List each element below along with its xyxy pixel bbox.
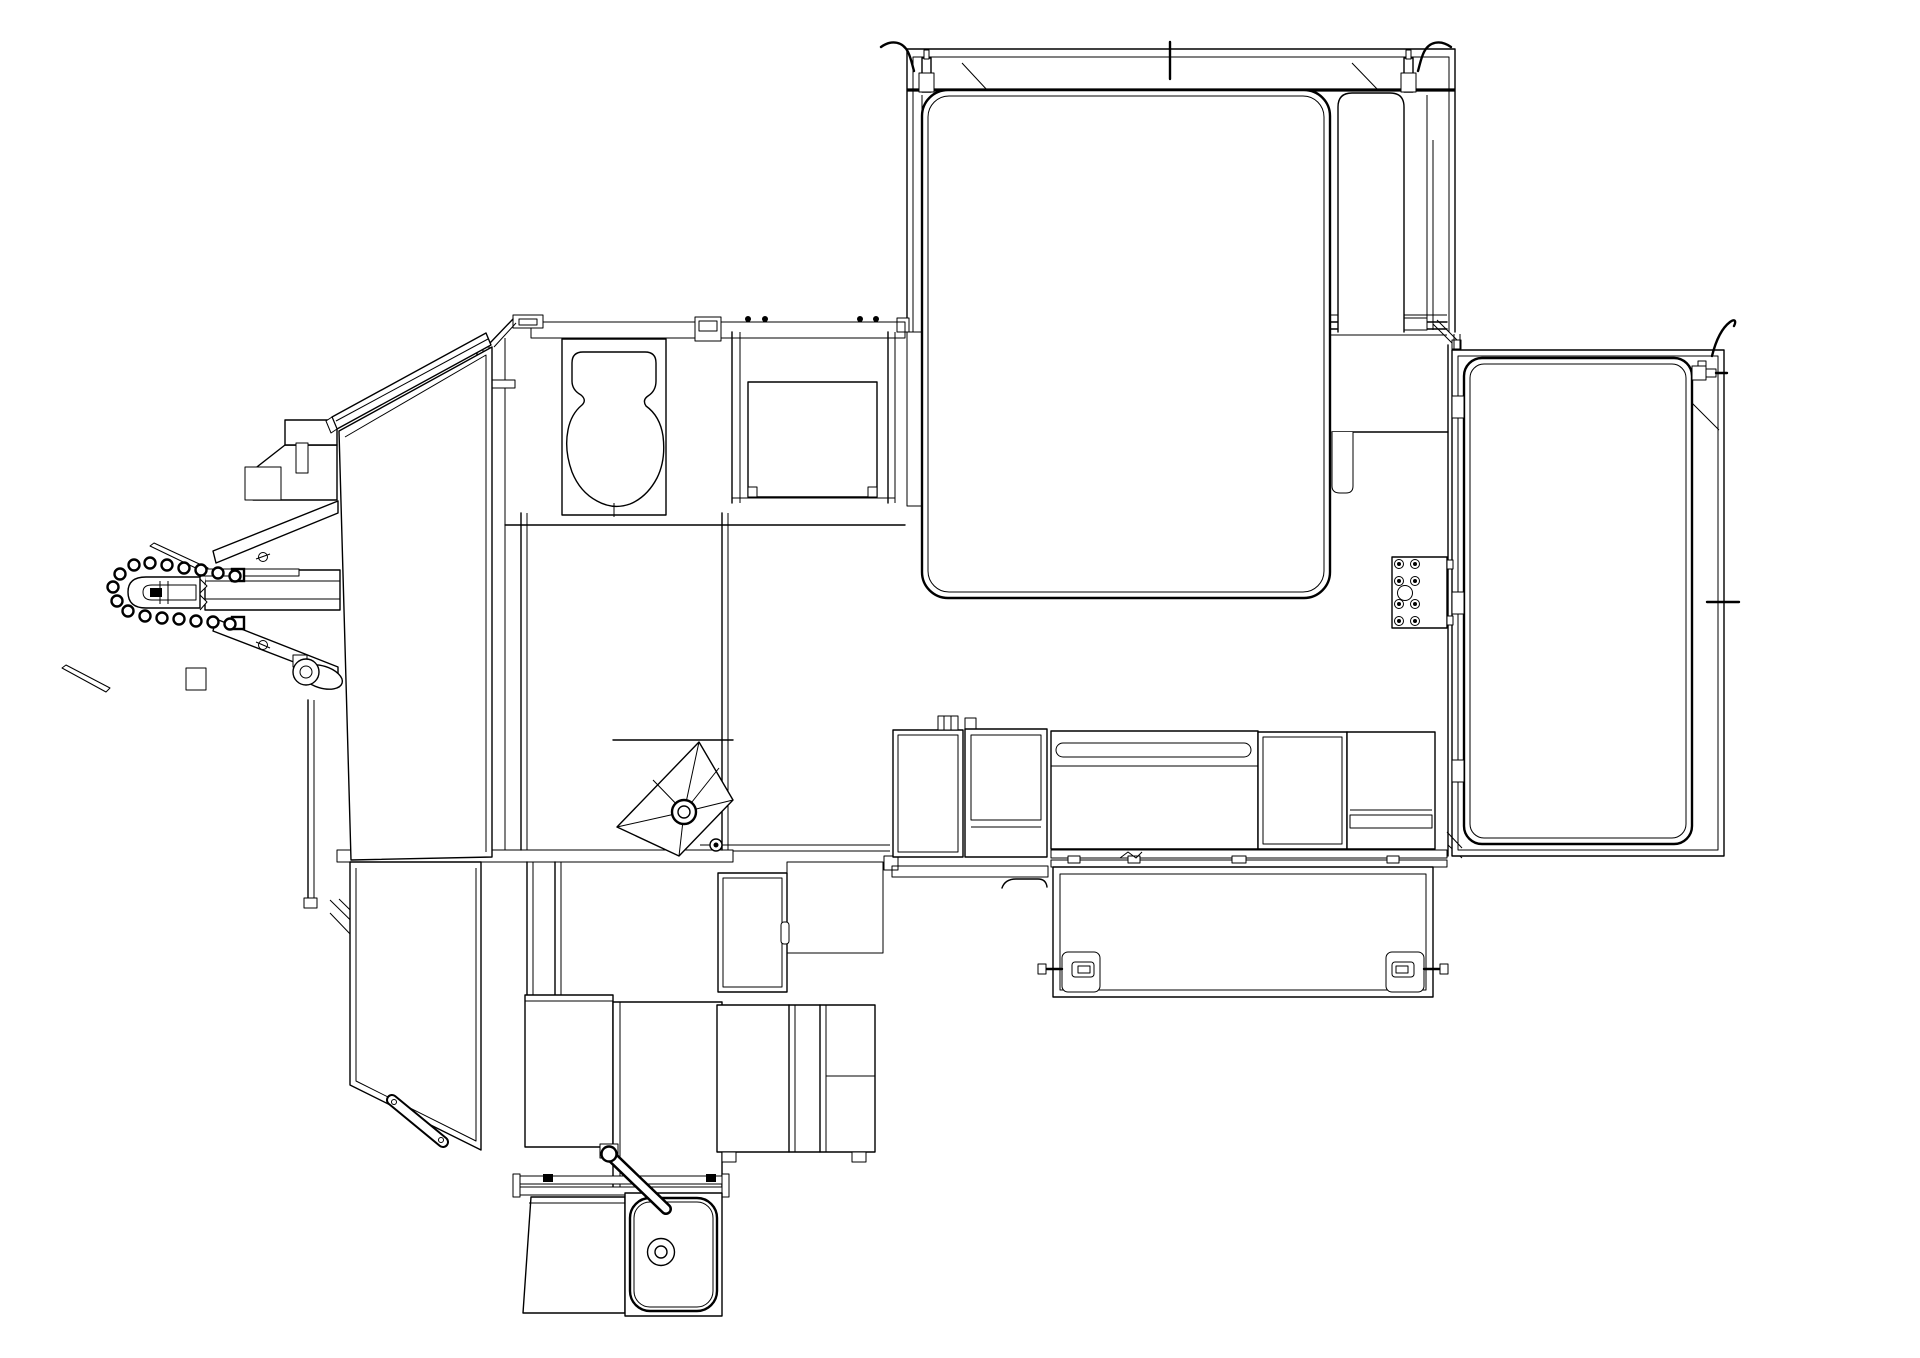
bolt-plate [1392,557,1453,628]
storage-door [718,873,787,992]
bottom-wall-strip-right [892,866,1048,877]
fridge-bay [732,332,895,503]
latch-pin-left [919,50,934,92]
storage-box [1347,732,1435,849]
right-foldout [1447,320,1739,856]
storage-box [893,730,963,857]
mattress [922,90,1330,598]
slide-rails-rear [1051,850,1447,867]
storage-box [525,995,613,1147]
fridge-hatch-panel [748,382,877,497]
hinge-block [296,443,308,473]
coupling [128,577,200,608]
sink [630,1198,717,1311]
rear-door [1038,867,1448,997]
trailer-plan-drawing [0,0,1920,1358]
vent [938,716,958,730]
bed-area [922,90,1448,598]
pull-strap-left [881,42,914,71]
divided-box [717,1005,875,1152]
bed-cross-member [1332,432,1448,493]
latch-pocket-right [1386,952,1448,992]
shower-tray [617,742,733,856]
jerry-can-tank [567,352,664,506]
door-panel [350,862,481,1150]
latch-pin-right [1401,50,1416,92]
counter-row [893,716,1435,857]
winch-mount [245,420,337,500]
kitchen-box [523,1197,625,1313]
divider-wall [907,332,922,506]
corner-brace [962,63,988,91]
drawing-canvas [0,0,1920,1358]
aframe-arm-upper [213,501,338,563]
latch-pocket-left [1038,952,1100,992]
latch-hook [1002,879,1047,888]
side-flap-panel [1338,93,1404,332]
underbody-storage [525,862,883,1192]
corner-bracket [897,318,909,332]
storage-box [1258,732,1347,849]
door-panel [1464,358,1692,844]
bench [1051,731,1258,849]
storage-box [613,1002,722,1192]
storage-box [965,729,1047,857]
corner-brace [1352,63,1379,91]
